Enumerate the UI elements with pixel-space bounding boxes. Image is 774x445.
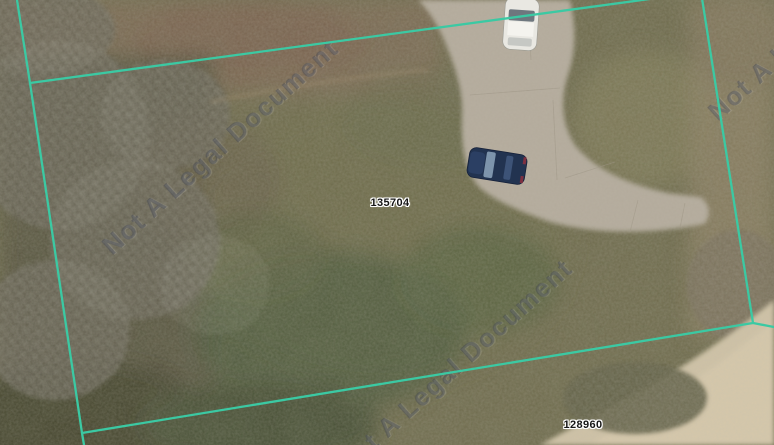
white-vehicle-rear-window (507, 37, 531, 47)
parcel-label-center: 135704 (370, 197, 409, 209)
aerial-imagery: Not A Legal Document Not A Legal Documen… (0, 0, 774, 445)
white-vehicle (502, 0, 540, 51)
parcel-label-bottom: 128960 (563, 419, 602, 431)
white-vehicle-roof (507, 21, 534, 37)
map-canvas[interactable]: Not A Legal Document Not A Legal Documen… (0, 0, 774, 445)
